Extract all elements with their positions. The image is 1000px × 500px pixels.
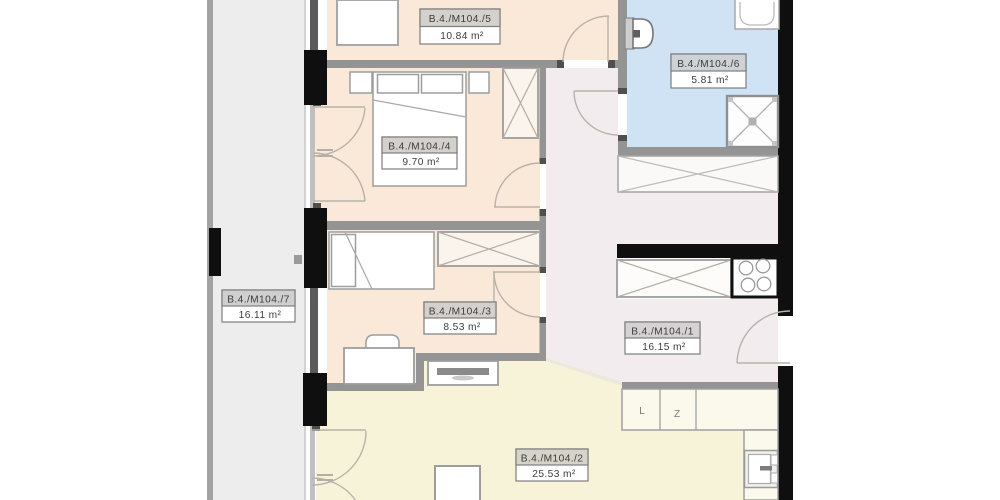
- svg-text:B.4./M104./3: B.4./M104./3: [429, 307, 492, 318]
- svg-text:8.53 m²: 8.53 m²: [443, 322, 481, 333]
- svg-text:B.4./M104./6: B.4./M104./6: [677, 59, 740, 70]
- svg-text:B.4./M104./7: B.4./M104./7: [227, 295, 290, 306]
- svg-text:5.81 m²: 5.81 m²: [691, 75, 729, 86]
- svg-text:L: L: [639, 406, 645, 417]
- svg-text:16.11 m²: 16.11 m²: [239, 310, 282, 321]
- svg-text:B.4./M104./2: B.4./M104./2: [521, 454, 584, 465]
- svg-text:B.4./M104./4: B.4./M104./4: [388, 142, 451, 153]
- svg-text:16.15 m²: 16.15 m²: [642, 342, 686, 353]
- svg-text:B.4./M104./5: B.4./M104./5: [429, 14, 492, 25]
- svg-text:Z: Z: [674, 409, 680, 420]
- svg-text:25.53 m²: 25.53 m²: [532, 469, 576, 480]
- svg-text:10.84 m²: 10.84 m²: [440, 31, 484, 42]
- svg-text:B.4./M104./1: B.4./M104./1: [631, 327, 694, 338]
- svg-text:9.70 m²: 9.70 m²: [402, 157, 440, 168]
